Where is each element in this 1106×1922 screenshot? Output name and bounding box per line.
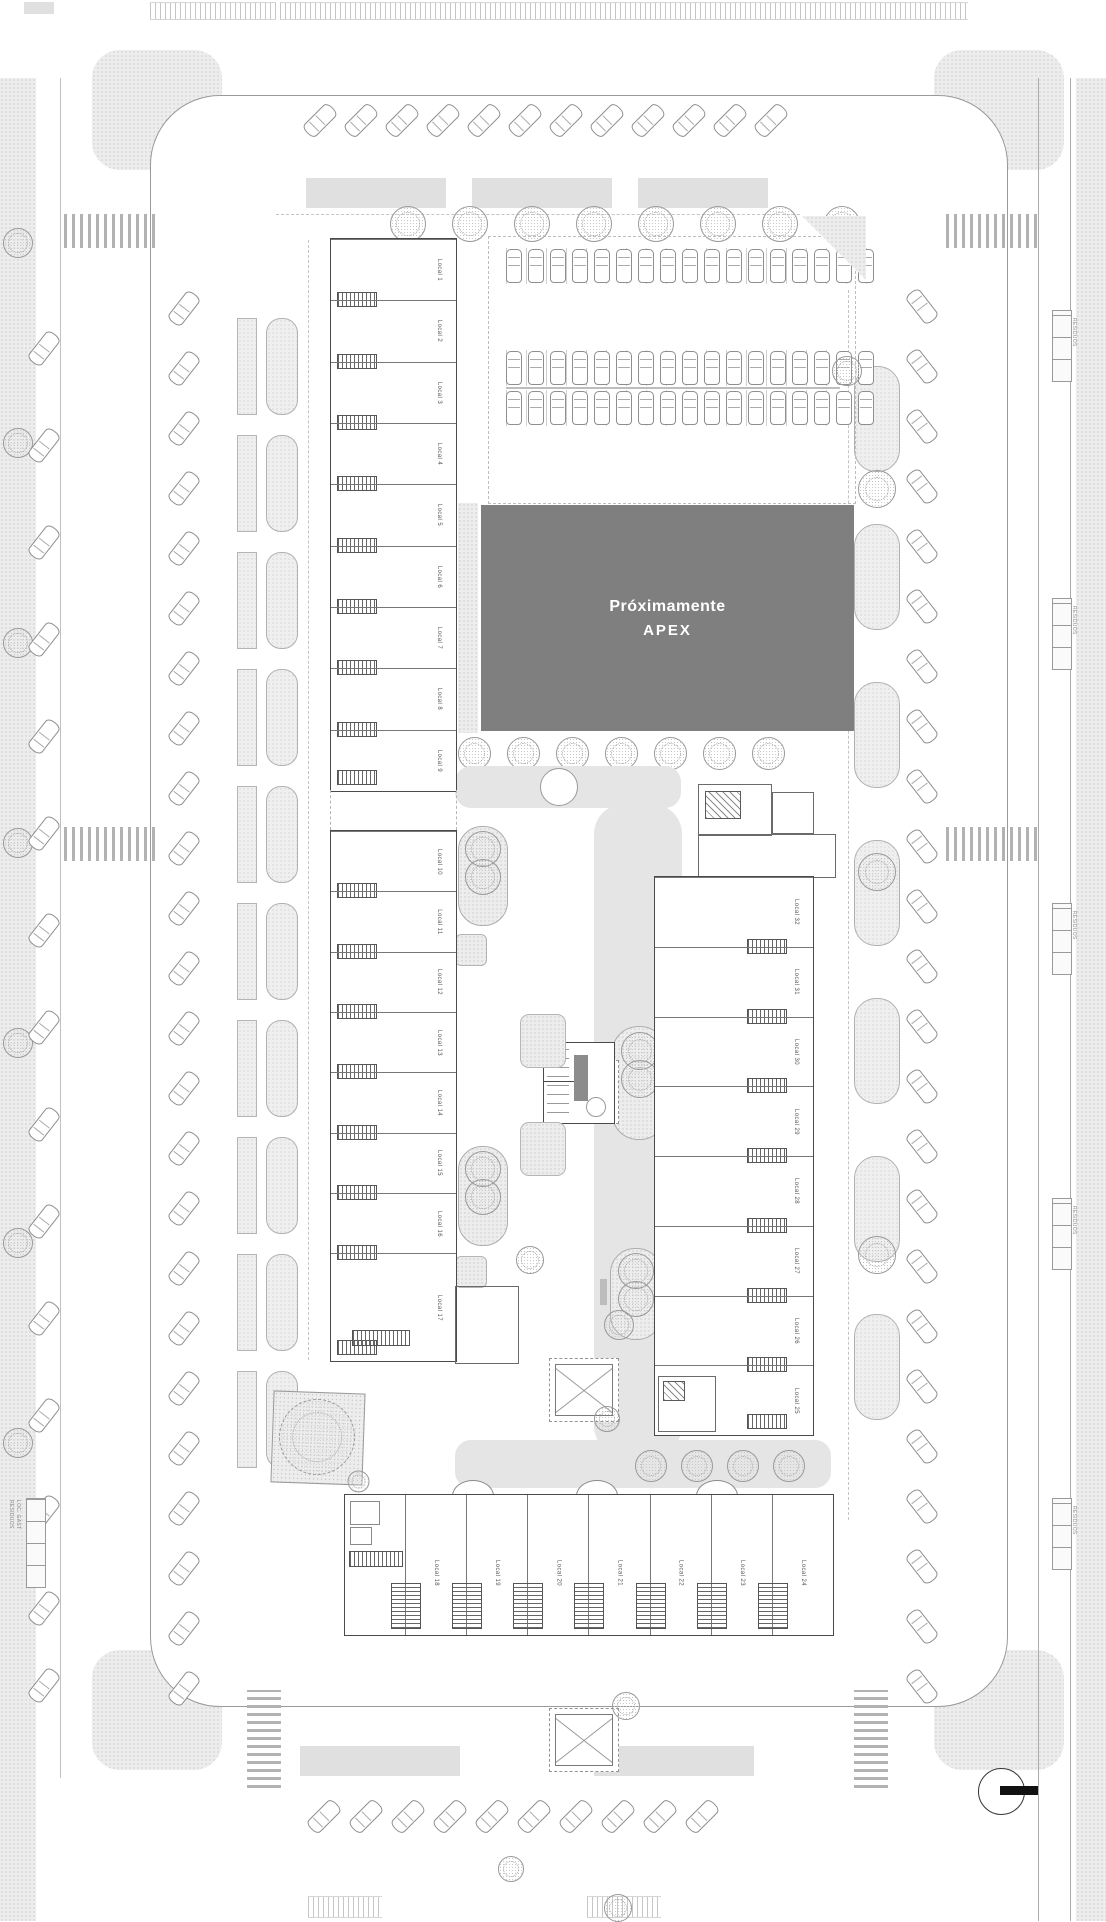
tree-icon [3, 228, 33, 258]
unit-row: Local 3 [331, 362, 456, 423]
left-field-planters [266, 318, 298, 1468]
planter-strip [237, 1020, 257, 1117]
car-icon [904, 647, 940, 686]
waste-bay-right [1052, 1498, 1072, 1570]
tree-icon [773, 1450, 805, 1482]
waste-bay-right [1052, 903, 1072, 975]
stairs-icon [574, 1583, 604, 1629]
kiosk-roof [555, 1714, 613, 1766]
car-icon [26, 1666, 62, 1705]
plaza-circle-feature [540, 768, 578, 806]
car-icon [748, 249, 764, 283]
tree-icon [681, 1450, 713, 1482]
services-core-wall [574, 1055, 588, 1101]
car-icon [557, 1798, 594, 1835]
unit-label: Local 16 [436, 1211, 442, 1237]
car-icon [638, 391, 654, 425]
stairs-icon [513, 1583, 543, 1629]
unit-row: Local 15 [331, 1133, 456, 1193]
bottom-units: Local 18 Local 19 Local 20 Local 21 Loca… [405, 1495, 833, 1635]
tree-icon [635, 1450, 667, 1482]
stairs-icon [391, 1583, 421, 1629]
tree-icon [594, 1406, 620, 1432]
right-field-parking [904, 298, 940, 1695]
car-icon [166, 1489, 202, 1528]
planter-strip [266, 318, 298, 415]
car-icon [389, 1798, 426, 1835]
car-icon [726, 249, 742, 283]
top-parking-double-row [506, 350, 840, 426]
car-icon [572, 391, 588, 425]
large-tree-icon [278, 1398, 357, 1477]
bottom-edge-hatch-1 [308, 1896, 382, 1918]
car-icon [26, 1105, 62, 1144]
waste-label: RESIDUOS [1071, 1206, 1077, 1235]
car-icon [166, 1069, 202, 1108]
unit-label: Local 12 [436, 969, 442, 995]
car-icon [904, 1607, 940, 1646]
car-icon [473, 1798, 510, 1835]
car-icon [904, 467, 940, 506]
unit-label: Local 31 [707, 969, 799, 995]
car-icon [904, 827, 940, 866]
unit-label: Local 19 [494, 1560, 500, 1586]
car-icon [166, 769, 202, 808]
car-icon [641, 1798, 678, 1835]
car-icon [166, 829, 202, 868]
car-icon [166, 649, 202, 688]
unit-row: Local 26 [655, 1296, 813, 1366]
car-icon [814, 249, 830, 283]
car-icon [26, 1202, 62, 1241]
car-icon [26, 620, 62, 659]
unit-label: Local 8 [436, 688, 442, 710]
big-corner-planter [270, 1390, 365, 1485]
unit-label: Local 30 [707, 1039, 799, 1065]
tree-icon [604, 1310, 634, 1340]
unit-row: Local 4 [331, 423, 456, 484]
car-icon [904, 1547, 940, 1586]
car-icon [506, 351, 522, 385]
planter-strip [854, 524, 900, 630]
planter-strip [266, 1254, 298, 1351]
apex-west-planting-strip [458, 503, 478, 733]
stairs-icon [636, 1583, 666, 1629]
planter-strip [854, 998, 900, 1104]
car-icon [431, 1798, 468, 1835]
car-icon [26, 1299, 62, 1338]
unit-label: Local 22 [678, 1560, 684, 1586]
top-edge-hatch-short [150, 2, 276, 20]
unit-label: Local 5 [436, 504, 442, 526]
unit-label: Local 23 [739, 1560, 745, 1586]
car-icon [904, 947, 940, 986]
car-icon [638, 351, 654, 385]
unit-row: Local 31 [655, 947, 813, 1017]
car-icon [904, 407, 940, 446]
unit-row: Local 10 [331, 831, 456, 891]
planter-square [520, 1122, 566, 1176]
car-icon [792, 249, 808, 283]
car-icon [704, 391, 720, 425]
car-icon [904, 1487, 940, 1526]
unit-label: Local 9 [436, 750, 442, 772]
stairs-icon [349, 1551, 403, 1567]
car-icon [166, 1249, 202, 1288]
car-icon [858, 391, 874, 425]
car-icon [166, 409, 202, 448]
annex-room [350, 1501, 380, 1525]
crosswalk-right-top [946, 214, 1042, 248]
unit-row: Local 12 [331, 952, 456, 1012]
unit-label: Local 28 [707, 1178, 799, 1204]
apex-sign: Próximamente APEX [481, 505, 854, 731]
unit-label: Local 14 [436, 1090, 442, 1116]
tree-icon [612, 1692, 640, 1720]
car-icon [660, 391, 676, 425]
stairs-icon [758, 1583, 788, 1629]
tree-icon [832, 356, 862, 386]
car-icon [166, 889, 202, 928]
planter-strip [854, 682, 900, 788]
tree-icon [858, 853, 896, 891]
car-icon [904, 767, 940, 806]
car-icon [166, 949, 202, 988]
car-icon [616, 391, 632, 425]
top-parking-row-2a [506, 350, 840, 386]
car-icon [726, 391, 742, 425]
car-icon [347, 1798, 384, 1835]
unit-label: Local 24 [800, 1560, 806, 1586]
car-icon [682, 249, 698, 283]
car-icon [704, 249, 720, 283]
crosswalk-left-top [64, 214, 160, 248]
car-icon [904, 347, 940, 386]
stall-divider [506, 387, 840, 389]
unit-label: Local 4 [436, 443, 442, 465]
right-bottom-annex [658, 1376, 716, 1432]
car-icon [26, 911, 62, 950]
stairs-icon [452, 1583, 482, 1629]
planter-strip [237, 786, 257, 883]
planter-strip [237, 318, 257, 415]
car-icon [682, 351, 698, 385]
car-icon [594, 391, 610, 425]
site-plan-page: { "sign": { "line1": "Próximamente", "li… [0, 0, 1106, 1921]
unit-column: Local 24 [772, 1495, 833, 1635]
car-icon [814, 351, 830, 385]
car-icon [616, 351, 632, 385]
top-parking-row-2b [506, 390, 840, 426]
car-icon [770, 391, 786, 425]
bench [600, 1279, 607, 1305]
planter-strip [237, 435, 257, 532]
planter-strip [237, 669, 257, 766]
car-icon [166, 1009, 202, 1048]
car-icon [166, 1369, 202, 1408]
annex-core [663, 1381, 685, 1401]
tree-icon [465, 859, 501, 895]
unit-row: Local 27 [655, 1226, 813, 1296]
tree-icon [858, 1236, 896, 1274]
right-entry-room-a [698, 784, 772, 836]
car-icon [904, 707, 940, 746]
top-road-parking [302, 112, 789, 129]
car-icon [726, 351, 742, 385]
crosswalk-bottom-left [247, 1690, 281, 1788]
planter-strip [854, 1314, 900, 1420]
crosswalk-left-mid [64, 827, 160, 861]
car-icon [166, 1189, 202, 1228]
tree-icon [465, 1179, 501, 1215]
top-pad-1 [306, 178, 446, 208]
planter-strip [237, 552, 257, 649]
planter-strip [266, 435, 298, 532]
waste-label: RESIDUOS [1071, 606, 1077, 635]
car-icon [528, 391, 544, 425]
waste-label: RESIDUOS [8, 1500, 14, 1529]
stairs-icon [352, 1330, 410, 1346]
car-icon [26, 814, 62, 853]
car-icon [594, 249, 610, 283]
unit-label: Local 21 [616, 1560, 622, 1586]
car-icon [904, 587, 940, 626]
right-entry-room-b [772, 792, 814, 834]
top-edge-pad [24, 2, 54, 14]
unit-row: Local 29 [655, 1086, 813, 1156]
top-pad-2 [472, 178, 612, 208]
car-icon [616, 249, 632, 283]
stairs-icon [697, 1583, 727, 1629]
unit-row: Local 16 [331, 1193, 456, 1253]
unit-label: Local 18 [433, 1560, 439, 1586]
car-icon [792, 391, 808, 425]
right-road-line-outer [1038, 78, 1039, 1921]
car-icon [528, 249, 544, 283]
waste-bay-left-label: RESIDUOS LOC. GAST [8, 1500, 27, 1529]
unit-label: Local 32 [707, 899, 799, 925]
unit-row: Local 2 [331, 300, 456, 361]
planter-strip [266, 1020, 298, 1117]
building-left-gap [330, 790, 457, 830]
car-icon [572, 249, 588, 283]
planter-strip [237, 1137, 257, 1234]
car-icon [26, 426, 62, 465]
waste-bay-left [26, 1498, 46, 1588]
unit-row: Local 28 [655, 1156, 813, 1226]
car-icon [26, 717, 62, 756]
plaza-bottom-tree-row [635, 1450, 805, 1482]
unit-label: Local 10 [436, 849, 442, 875]
right-sidewalk [1076, 78, 1106, 1921]
unit-label: Local 27 [707, 1248, 799, 1274]
planter-strip [237, 1254, 257, 1351]
car-icon [638, 249, 654, 283]
building-bottom: Local 18 Local 19 Local 20 Local 21 Loca… [344, 1494, 834, 1636]
apex-line2: APEX [643, 622, 692, 639]
stairs-icon [337, 770, 377, 785]
tree-icon [390, 206, 426, 242]
planter-square [455, 934, 487, 966]
car-icon [683, 1798, 720, 1835]
unit-row: Local 6 [331, 546, 456, 607]
car-icon [682, 391, 698, 425]
waste-label: RESIDUOS [1071, 1506, 1077, 1535]
unit-row: Local 14 [331, 1072, 456, 1132]
tree-icon [727, 1450, 759, 1482]
local17-annex [455, 1286, 519, 1364]
car-icon [792, 351, 808, 385]
car-icon [660, 351, 676, 385]
tree-icon [452, 206, 488, 242]
top-parking-row-1 [506, 248, 874, 284]
car-icon [836, 391, 852, 425]
unit-row: Local 11 [331, 891, 456, 951]
car-icon [704, 351, 720, 385]
right-entry-room-c [698, 834, 836, 878]
car-icon [166, 529, 202, 568]
apex-line1: Próximamente [609, 598, 725, 616]
tree-icon [858, 470, 896, 508]
car-icon [814, 391, 830, 425]
planter-square [455, 1256, 487, 1288]
planter-strip [266, 786, 298, 883]
unit-label: Local 11 [436, 909, 442, 934]
car-icon [770, 351, 786, 385]
unit-label: Local 26 [707, 1318, 799, 1344]
left-road-parking-2 [26, 1600, 62, 1694]
bottom-road-parking [306, 1808, 720, 1825]
unit-row: Local 7 [331, 607, 456, 668]
car-icon [506, 249, 522, 283]
building-right: Local 32 Local 31 Local 30 Local 29 Loca… [654, 876, 814, 1436]
unit-row: Local 1 [331, 239, 456, 300]
car-icon [904, 1427, 940, 1466]
waste-label: RESIDUOS [1071, 911, 1077, 940]
tree-icon [752, 737, 785, 770]
planter-strip [266, 669, 298, 766]
car-icon [26, 1008, 62, 1047]
tree-icon [604, 1894, 632, 1922]
unit-label: Local 3 [436, 382, 442, 404]
car-icon [904, 1307, 940, 1346]
car-icon [515, 1798, 552, 1835]
building-left-top: Local 1 Local 2 Local 3 Local 4 Local 5 … [330, 238, 457, 792]
kiosk-4 [549, 1708, 619, 1772]
waste-bay-right [1052, 598, 1072, 670]
annex-room [350, 1527, 372, 1545]
left-road-parking [26, 340, 62, 1521]
waste-bay-right [1052, 1198, 1072, 1270]
unit-row: Local 8 [331, 668, 456, 729]
car-icon [748, 391, 764, 425]
left-field-islands [237, 318, 257, 1468]
elevator-core [705, 791, 741, 819]
bottom-pad-1 [300, 1746, 460, 1776]
car-icon [660, 249, 676, 283]
unit-label: Local 2 [436, 320, 442, 342]
tree-icon [498, 1856, 524, 1882]
north-arrow-needle [1000, 1786, 1038, 1795]
car-icon [904, 1127, 940, 1166]
arcade-dash-left [308, 240, 309, 1360]
car-icon [26, 1396, 62, 1435]
car-icon [528, 351, 544, 385]
car-icon [166, 589, 202, 628]
car-icon [904, 1007, 940, 1046]
waste-bay-right [1052, 310, 1072, 382]
unit-row: Local 5 [331, 484, 456, 545]
crosswalk-right-mid [946, 827, 1042, 861]
car-icon [506, 391, 522, 425]
tree-icon [516, 1246, 544, 1274]
top-edge-hatch-long [280, 2, 968, 20]
car-icon [572, 351, 588, 385]
car-icon [166, 1609, 202, 1648]
unit-label: Local 25 [707, 1388, 799, 1414]
unit-label: Local 29 [707, 1109, 799, 1135]
car-icon [904, 527, 940, 566]
planter-strip [266, 903, 298, 1000]
unit-label: Local 20 [555, 1560, 561, 1586]
planter-dogbone-3 [458, 1146, 508, 1246]
planter-strip [266, 552, 298, 649]
unit-label: Local 6 [436, 566, 442, 588]
car-icon [166, 469, 202, 508]
planter-strip [237, 1371, 257, 1468]
planter-strip [266, 1137, 298, 1234]
car-icon [550, 351, 566, 385]
car-icon [26, 523, 62, 562]
car-icon [305, 1798, 342, 1835]
car-icon [166, 1129, 202, 1168]
unit-label: Local 7 [436, 627, 442, 649]
unit-row: Local 9 [331, 730, 456, 791]
planter-square [520, 1014, 566, 1068]
unit-label: Local 17 [436, 1295, 442, 1321]
top-pad-3 [638, 178, 768, 208]
building-left-bottom: Local 10 Local 11 Local 12 Local 13 Loca… [330, 830, 457, 1362]
crosswalk-bottom-right [854, 1690, 888, 1788]
car-icon [599, 1798, 636, 1835]
unit-row: Local 32 [655, 877, 813, 947]
car-icon [904, 1367, 940, 1406]
car-icon [550, 249, 566, 283]
car-icon [166, 709, 202, 748]
car-icon [166, 1309, 202, 1348]
unit-label: Local 1 [436, 259, 442, 281]
car-icon [770, 249, 786, 283]
left-field-parking [166, 300, 202, 1697]
planter-strip [237, 903, 257, 1000]
car-icon [904, 1067, 940, 1106]
services-door [586, 1097, 606, 1117]
car-icon [904, 1247, 940, 1286]
car-icon [904, 1187, 940, 1226]
waste-sublabel: LOC. GAST [15, 1500, 21, 1529]
planter-dogbone-1 [458, 826, 508, 926]
unit-label: Local 13 [436, 1030, 442, 1056]
waste-label: RESIDUOS [1071, 318, 1077, 347]
unit-row: Local 30 [655, 1017, 813, 1087]
car-icon [550, 391, 566, 425]
tree-icon [703, 737, 736, 770]
car-icon [166, 349, 202, 388]
stairs-icon [747, 1414, 787, 1429]
unit-row: Local 13 [331, 1012, 456, 1072]
car-icon [594, 351, 610, 385]
car-icon [904, 887, 940, 926]
